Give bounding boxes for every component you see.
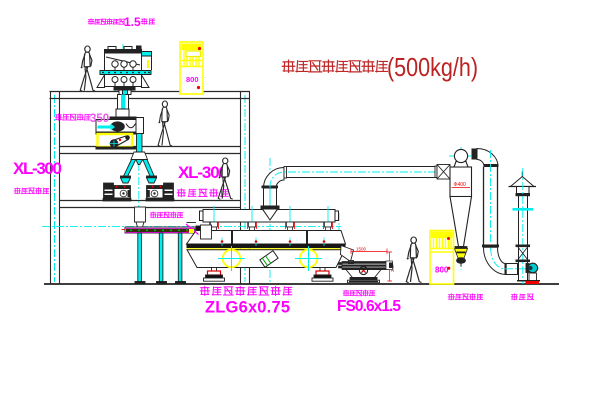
svg-text:800: 800: [435, 266, 449, 275]
svg-text:1500: 1500: [356, 247, 367, 252]
svg-text:Φ400: Φ400: [454, 182, 467, 188]
svg-text:FS0.6x1.5: FS0.6x1.5: [337, 298, 401, 315]
svg-text:(500kg/h): (500kg/h): [387, 52, 478, 82]
svg-text:350: 350: [90, 113, 109, 125]
svg-text:1.5: 1.5: [124, 15, 141, 29]
svg-text:ZLG6x0.75: ZLG6x0.75: [205, 299, 290, 317]
svg-text:XL-300: XL-300: [13, 159, 62, 178]
svg-text:800: 800: [186, 75, 199, 84]
